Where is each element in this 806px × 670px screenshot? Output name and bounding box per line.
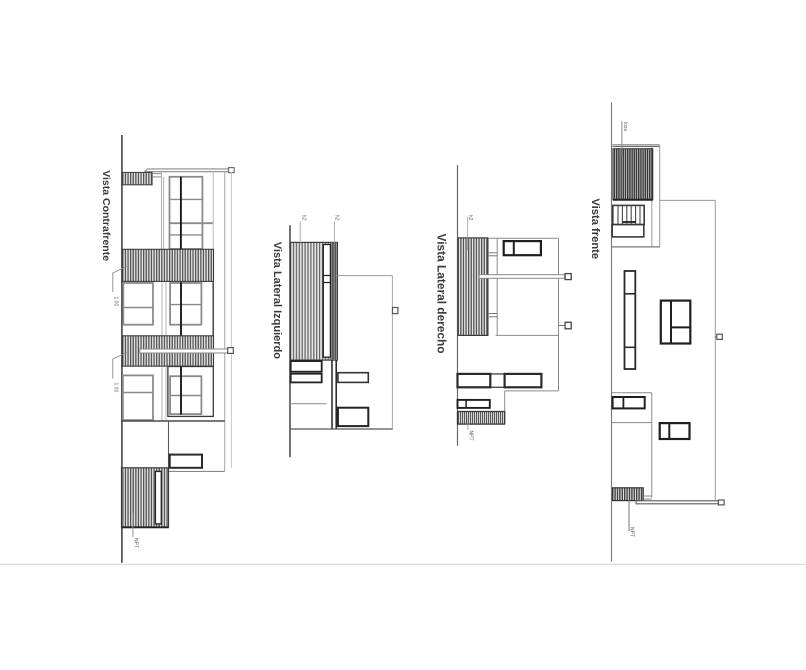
- svg-text:Vista Lateral derecho: Vista Lateral derecho: [435, 234, 449, 354]
- svg-text:NPT: NPT: [133, 538, 139, 548]
- svg-text:NPT: NPT: [629, 527, 635, 537]
- svg-text:Vista Lateral Izquierdo: Vista Lateral Izquierdo: [271, 242, 283, 359]
- svg-text:1.00: 1.00: [113, 297, 119, 307]
- svg-text:NPT: NPT: [468, 431, 474, 441]
- svg-text:Vista frente: Vista frente: [589, 198, 601, 259]
- svg-text:h2: h2: [334, 215, 340, 221]
- svg-text:h2: h2: [301, 215, 307, 221]
- svg-text:h2: h2: [467, 215, 473, 221]
- svg-text:1.00: 1.00: [113, 383, 119, 393]
- svg-text:losa: losa: [622, 122, 628, 131]
- svg-text:Vista Contrafrente: Vista Contrafrente: [100, 170, 112, 261]
